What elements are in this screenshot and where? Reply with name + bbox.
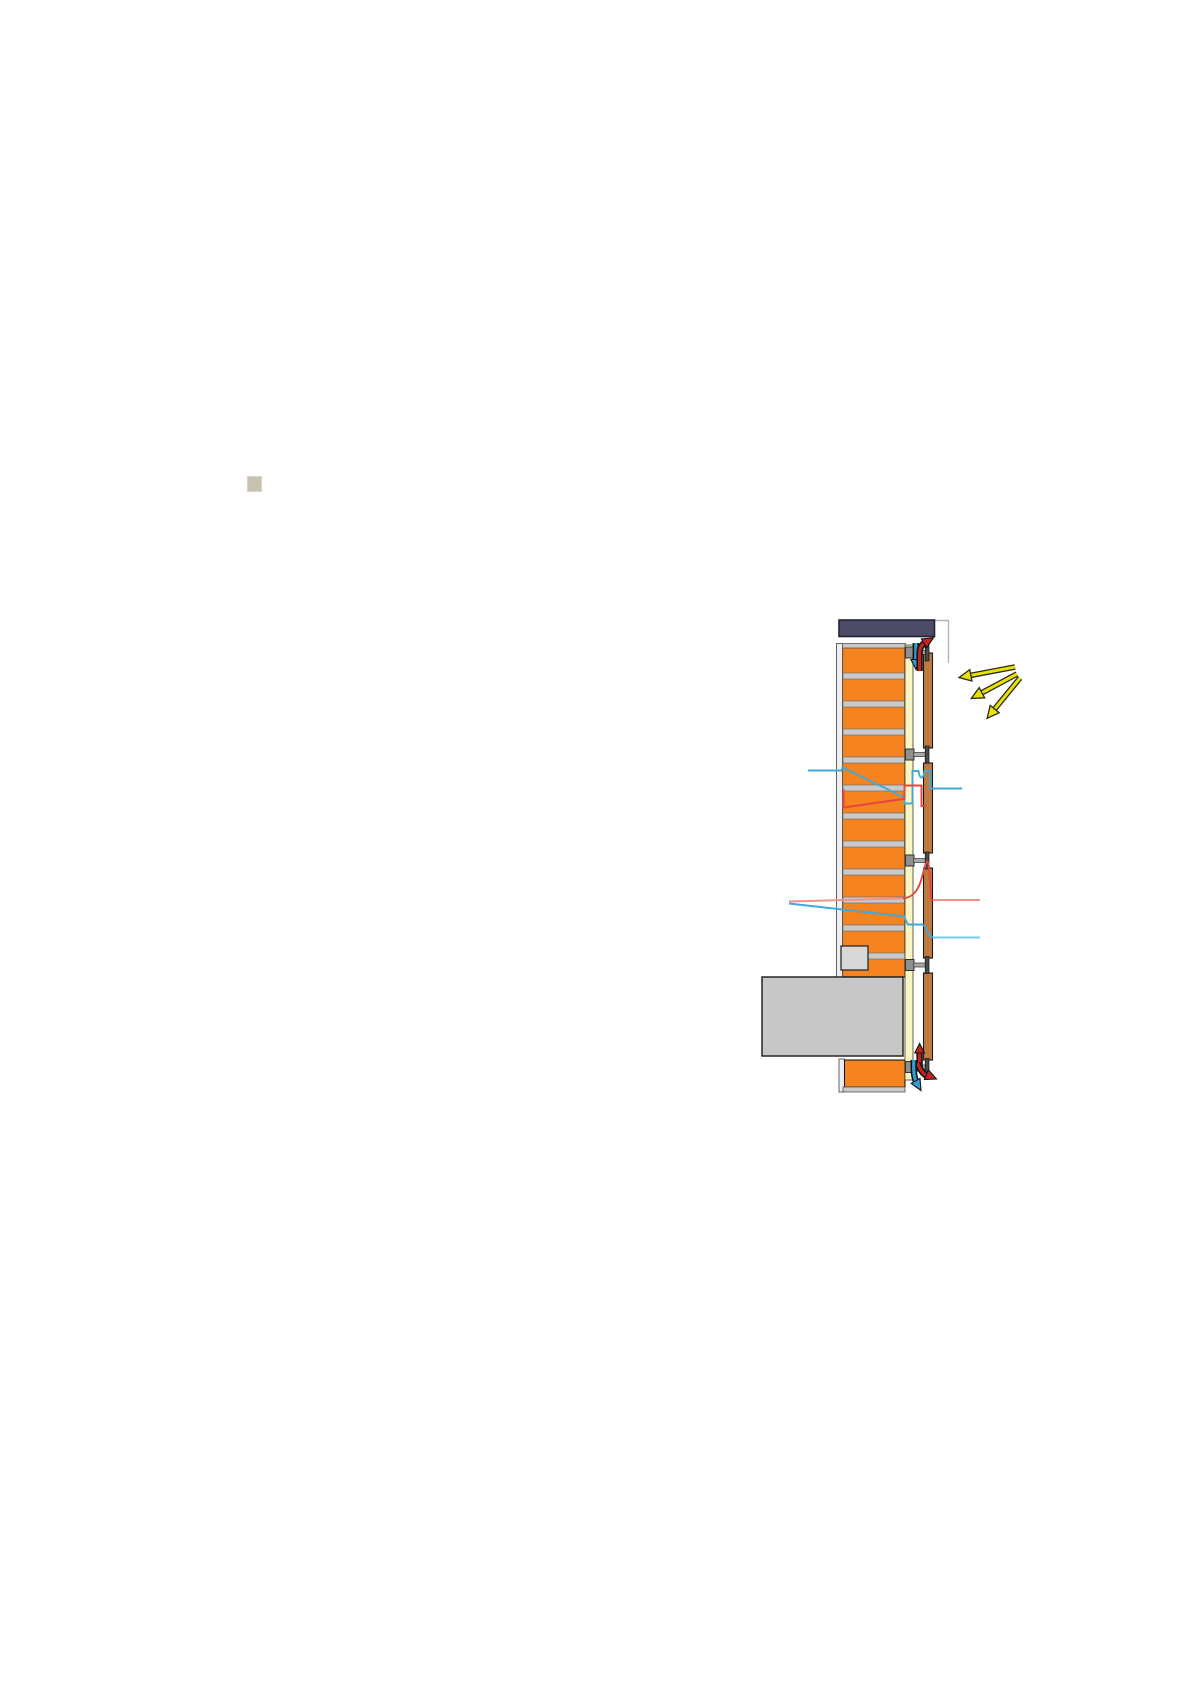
- mortar-joint: [843, 841, 905, 847]
- wall-top-cap: [843, 644, 906, 649]
- parapet-coping: [839, 620, 935, 637]
- mortar-joint: [843, 785, 905, 791]
- bracket-anchor-block: [906, 749, 915, 760]
- mortar-joint: [868, 953, 905, 959]
- glazing-panel: [924, 973, 933, 1060]
- sun-ray-shaft: [971, 667, 1015, 675]
- mortar-joint: [843, 729, 905, 735]
- reference-line: [934, 621, 949, 664]
- fixing-bracket: [906, 746, 930, 763]
- facade-section-diagram: [0, 0, 1196, 1692]
- bracket-anchor-block: [906, 960, 915, 971]
- wall-inner-edge: [837, 644, 843, 978]
- wall-bottom-cap: [843, 1087, 905, 1092]
- masonry-wall-below-slab: [845, 1060, 906, 1087]
- sun-ray-head: [959, 670, 972, 681]
- lintel-block: [841, 946, 868, 970]
- sun-rays: [959, 667, 1020, 718]
- glazing-panel: [924, 653, 933, 748]
- bracket-anchor-block: [906, 855, 915, 866]
- glazing-panel: [924, 868, 933, 958]
- fixing-bracket: [906, 957, 930, 974]
- mortar-joint: [843, 869, 905, 875]
- mortar-joint: [843, 813, 905, 819]
- document-page: [0, 0, 1196, 1692]
- bracket-t-profile: [925, 957, 929, 974]
- mortar-joint: [843, 701, 905, 707]
- bracket-t-profile: [925, 746, 929, 763]
- mortar-joint: [843, 673, 905, 679]
- mortar-joint: [843, 757, 905, 763]
- mortar-joint: [843, 925, 905, 931]
- floor-slab: [762, 977, 903, 1056]
